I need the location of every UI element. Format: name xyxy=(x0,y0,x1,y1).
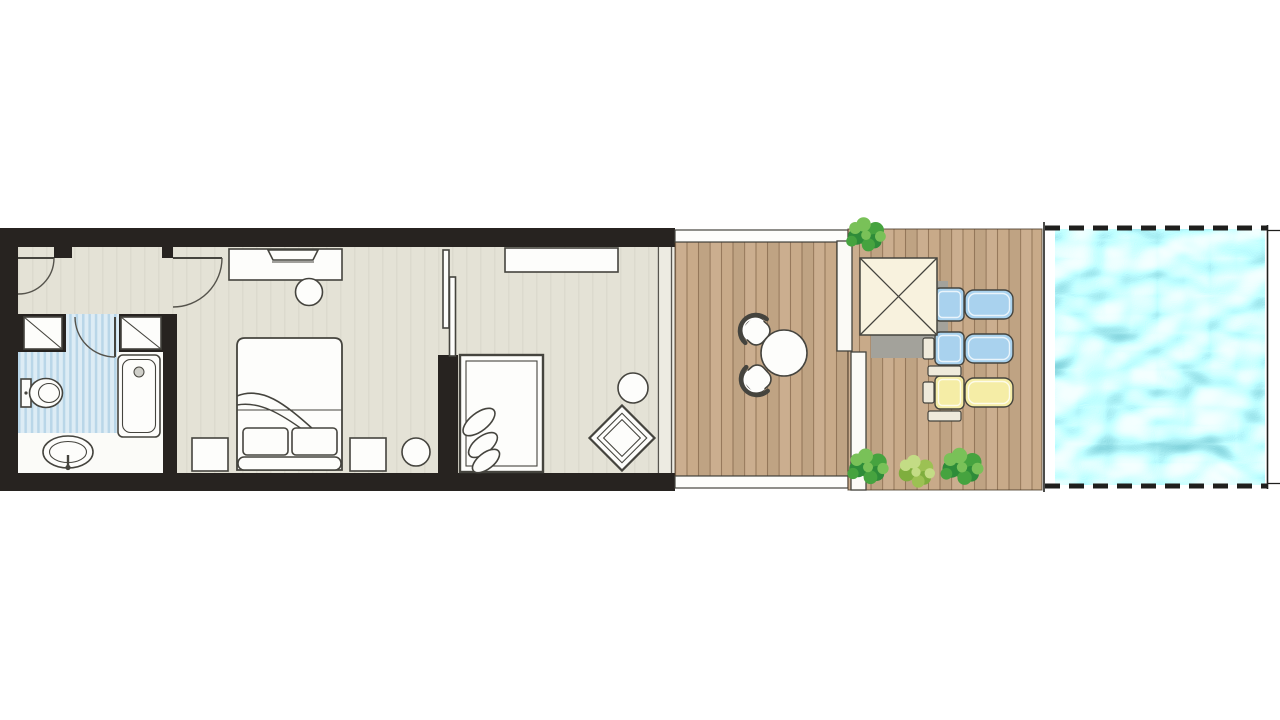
deck-a-bottom-ledge xyxy=(675,476,848,488)
wooden-deck xyxy=(675,230,848,488)
side-table xyxy=(618,373,648,403)
closet-left xyxy=(24,317,62,349)
headboard xyxy=(238,457,341,470)
toilet xyxy=(21,379,63,408)
pool-water xyxy=(1055,229,1265,485)
floorplan-drawing: .lshape{fill:var(--lounger-blue);stroke:… xyxy=(0,0,1280,720)
sun-deck: .lshape{fill:var(--lounger-blue);stroke:… xyxy=(837,217,1042,490)
glass-wall xyxy=(657,247,675,473)
interior-suite xyxy=(0,228,675,491)
sun-lounger-blue-2 xyxy=(923,332,1013,365)
wall-left xyxy=(0,228,18,491)
wall-bottom xyxy=(0,473,675,491)
sun-lounger-yellow xyxy=(923,376,1013,409)
deck-side-table-2 xyxy=(928,411,961,421)
private-pool xyxy=(1044,222,1280,492)
floorplan-canvas: .lshape{fill:var(--lounger-blue);stroke:… xyxy=(0,0,1280,720)
bedroom-door-jamb xyxy=(162,247,173,258)
bed-pillow-right xyxy=(292,428,337,455)
wall-top xyxy=(0,228,675,247)
ottoman xyxy=(402,438,430,466)
laptop xyxy=(268,250,318,260)
closet-right xyxy=(121,317,161,349)
pergola-parasol xyxy=(860,258,937,335)
nightstand-right xyxy=(350,438,386,471)
wall-bathroom-bedroom xyxy=(163,314,177,473)
desk-chair xyxy=(296,279,323,306)
outdoor-table xyxy=(761,330,807,376)
desk xyxy=(229,249,342,280)
entry-door-jamb xyxy=(54,247,72,258)
bathtub xyxy=(118,355,160,437)
double-bed xyxy=(237,338,342,470)
wall-partition-stub xyxy=(438,355,458,473)
daybed xyxy=(458,355,543,477)
privacy-screen-upper xyxy=(837,241,852,351)
console-shelf xyxy=(505,248,618,272)
deck-side-table-1 xyxy=(928,366,961,376)
nightstand-left xyxy=(192,438,228,471)
bed-pillow-left xyxy=(243,428,288,455)
deck-a-top-ledge xyxy=(675,230,848,242)
bathroom-door-opening xyxy=(66,314,119,352)
